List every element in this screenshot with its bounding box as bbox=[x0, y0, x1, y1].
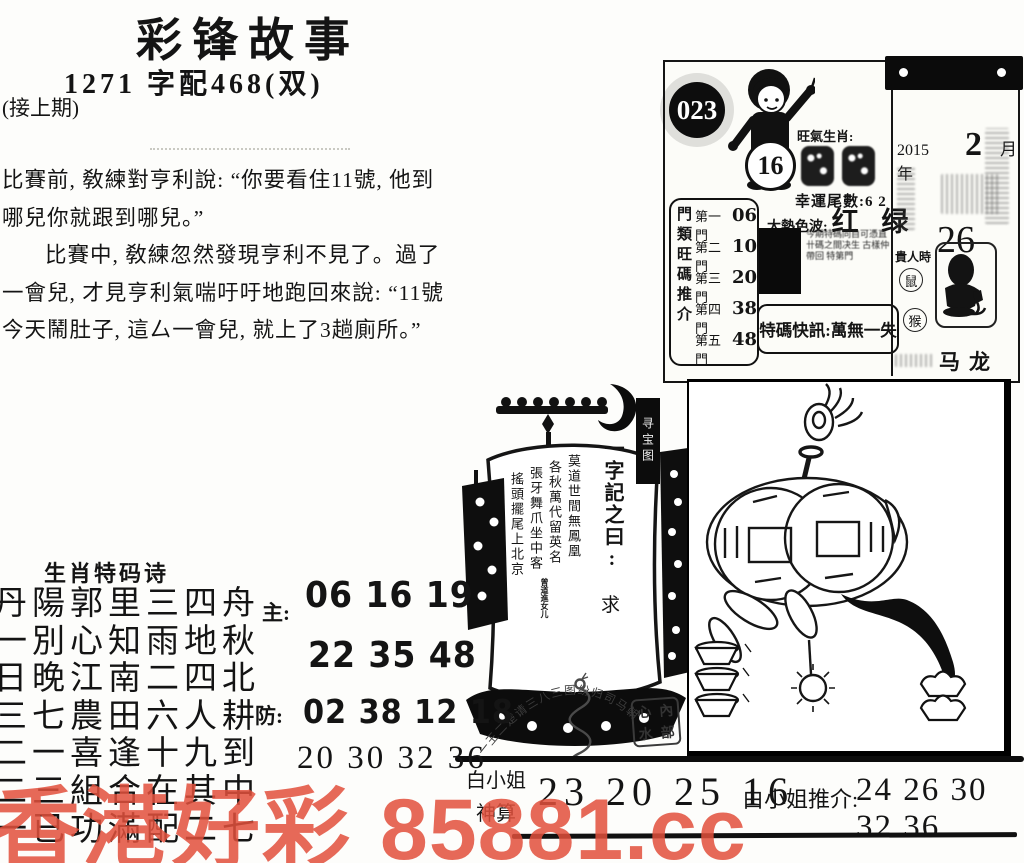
tip-small-text: 今期特碼同自可憑直 卄碼之間决生 古樣仲帶回 特第門 bbox=[806, 229, 898, 295]
zodiac-poem-title: 生肖特码诗 bbox=[44, 556, 169, 588]
zodiac-art-glyph bbox=[842, 146, 875, 186]
calendar-panel: 2015年 2 月 26 貴人時 鼠 猴 马龙 bbox=[891, 62, 1017, 376]
dark-figure-art bbox=[937, 244, 991, 322]
gate-row: 第三門20 bbox=[695, 267, 757, 298]
gate-row: 第二門10 bbox=[695, 236, 757, 267]
ornate-zodiac-glyphs bbox=[801, 146, 883, 191]
right-ornament-strip bbox=[660, 448, 690, 678]
noble-hours-label: 貴人時 bbox=[895, 248, 931, 265]
site-watermark: 香港好彩85881.cc bbox=[0, 758, 747, 863]
poem-line: 三七農田六人耕 bbox=[0, 699, 294, 737]
story-paragraph: 比賽前, 敎練對亨利說: “你要看住11號, 他到哪兒你就跟到哪兒。” bbox=[2, 162, 454, 237]
scan-artifact-line bbox=[150, 148, 350, 150]
noble-zodiac-monkey: 猴 bbox=[903, 308, 927, 332]
illegible-print bbox=[985, 128, 1009, 224]
calendar-hanger-banner bbox=[885, 56, 1023, 90]
zodiac-label: 旺氣生肖: bbox=[797, 126, 853, 145]
zodiac-art-glyph bbox=[801, 146, 834, 186]
calendar-zodiac-pair: 马龙 bbox=[939, 346, 999, 376]
poem-line: 丹陽郭里三四舟 bbox=[0, 586, 294, 624]
main-numbers-label: 主: bbox=[262, 597, 290, 627]
main-numbers-row2: 22 35 48 bbox=[308, 635, 477, 676]
poem-line: 日晚江南二四北 bbox=[0, 661, 294, 699]
main-numbers-row1: 06 16 19 bbox=[305, 575, 474, 616]
story-text: 比賽前, 敎練對亨利說: “你要看住11號, 他到哪兒你就跟到哪兒。” 比賽中,… bbox=[2, 162, 454, 350]
gates-title: 門類旺碼推介 bbox=[673, 206, 694, 360]
gate-row: 第五門48 bbox=[695, 329, 757, 360]
zodiac-figure-box bbox=[935, 242, 997, 328]
scan-page: 彩锋故事 1271 字配468(双) (接上期) 比賽前, 敎練對亨利說: “你… bbox=[0, 0, 1024, 863]
calendar-month: 2 bbox=[965, 126, 982, 164]
gates-box: 門類旺碼推介 第一門06 第二門10 第三門20 第四門38 第五門48 bbox=[669, 198, 759, 366]
recommend-label: 白小姐推介: bbox=[742, 782, 858, 814]
illegible-print bbox=[897, 166, 915, 230]
watermark-chinese: 香港好彩 bbox=[0, 779, 352, 863]
puzzle-drawing-box bbox=[687, 379, 1011, 760]
guard-numbers-row1: 02 38 12 18 bbox=[303, 692, 514, 731]
motto-label: 一字記之曰: bbox=[598, 438, 627, 578]
puzzle-creature-illustration bbox=[689, 382, 993, 737]
story-paragraph: 比賽中, 敎練忽然發現亨利不見了。過了一會兒, 才見亨利氣喘吁吁地跑回來說: “… bbox=[2, 237, 454, 350]
sail-poem-line: 莫道世間無鳳凰 bbox=[564, 454, 583, 624]
poem-line: 一別心知雨地秋 bbox=[0, 624, 294, 662]
special-news-box: 特碼快訊:萬無一失 bbox=[757, 304, 899, 354]
gates-rows: 第一門06 第二門10 第三門20 第四門38 第五門48 bbox=[695, 205, 757, 360]
treasure-map-tag: 寻宝图 bbox=[636, 398, 660, 484]
noble-zodiac-rat: 鼠 bbox=[899, 268, 923, 292]
guard-numbers-label: 防: bbox=[255, 700, 283, 730]
gate-row: 第一門06 bbox=[695, 205, 757, 236]
sail-poem-line: 搖頭擺尾上北京 bbox=[507, 472, 526, 642]
motto-word: 求 bbox=[601, 590, 620, 617]
inner-tip-stamp: 心內 水部 bbox=[630, 696, 681, 747]
page-title: 彩锋故事 bbox=[136, 4, 360, 70]
ball-number: 16 bbox=[745, 140, 796, 191]
illegible-print bbox=[895, 354, 935, 367]
info-card: 023 16 旺氣生肖: 幸運尾數:6 2 大熱色波: 红 绿 bbox=[663, 60, 1020, 383]
gate-row: 第四門38 bbox=[695, 298, 757, 329]
issue-number-badge: 023 bbox=[669, 82, 725, 138]
continued-note: (接上期) bbox=[2, 92, 79, 122]
watermark-url: 85881.cc bbox=[380, 782, 747, 863]
issue-subtitle: 1271 字配468(双) bbox=[64, 62, 324, 102]
black-ink-block bbox=[759, 228, 801, 294]
sail-signature: 曾道進女儿 bbox=[539, 578, 550, 638]
